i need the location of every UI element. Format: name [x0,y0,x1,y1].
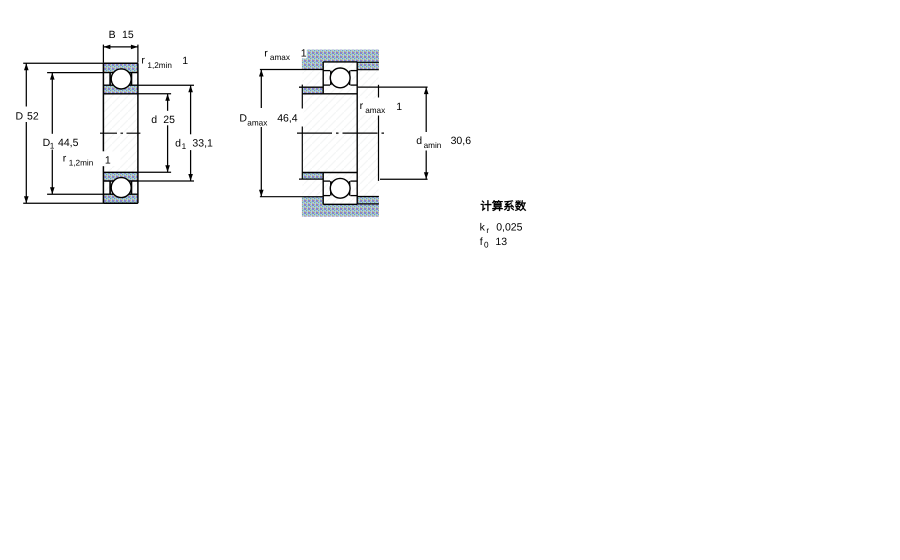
svg-text:amax: amax [270,53,290,62]
svg-text:D: D [239,112,247,124]
svg-text:k: k [480,222,486,234]
svg-text:1: 1 [182,55,188,67]
svg-text:25: 25 [163,114,175,126]
svg-text:amax: amax [247,118,267,127]
svg-text:B: B [109,29,116,41]
svg-text:1,2min: 1,2min [147,61,172,70]
svg-text:amax: amax [365,106,385,115]
svg-text:r: r [360,100,364,112]
svg-text:1: 1 [396,101,402,113]
svg-text:1: 1 [50,142,55,151]
svg-text:amin: amin [424,141,442,150]
svg-text:f: f [480,236,483,248]
svg-text:1,2min: 1,2min [69,159,94,168]
svg-text:r: r [141,55,145,67]
svg-text:15: 15 [122,29,134,41]
svg-text:1: 1 [182,142,187,151]
svg-text:46,4: 46,4 [277,112,298,124]
svg-text:44,5: 44,5 [58,137,79,149]
svg-text:13: 13 [495,236,507,248]
svg-text:r: r [264,47,268,59]
svg-text:1: 1 [105,154,111,166]
svg-text:0,025: 0,025 [496,222,522,234]
svg-text:d: d [175,137,181,149]
svg-text:1: 1 [301,48,307,60]
svg-text:D: D [16,110,24,122]
svg-text:0: 0 [484,241,489,250]
svg-text:d: d [416,135,422,147]
svg-text:52: 52 [27,110,39,122]
svg-text:30,6: 30,6 [451,135,472,147]
svg-text:r: r [486,226,489,235]
svg-text:d: d [151,114,157,126]
svg-text:r: r [63,153,67,165]
svg-text:计算系数: 计算系数 [480,200,526,213]
svg-text:33,1: 33,1 [192,137,213,149]
